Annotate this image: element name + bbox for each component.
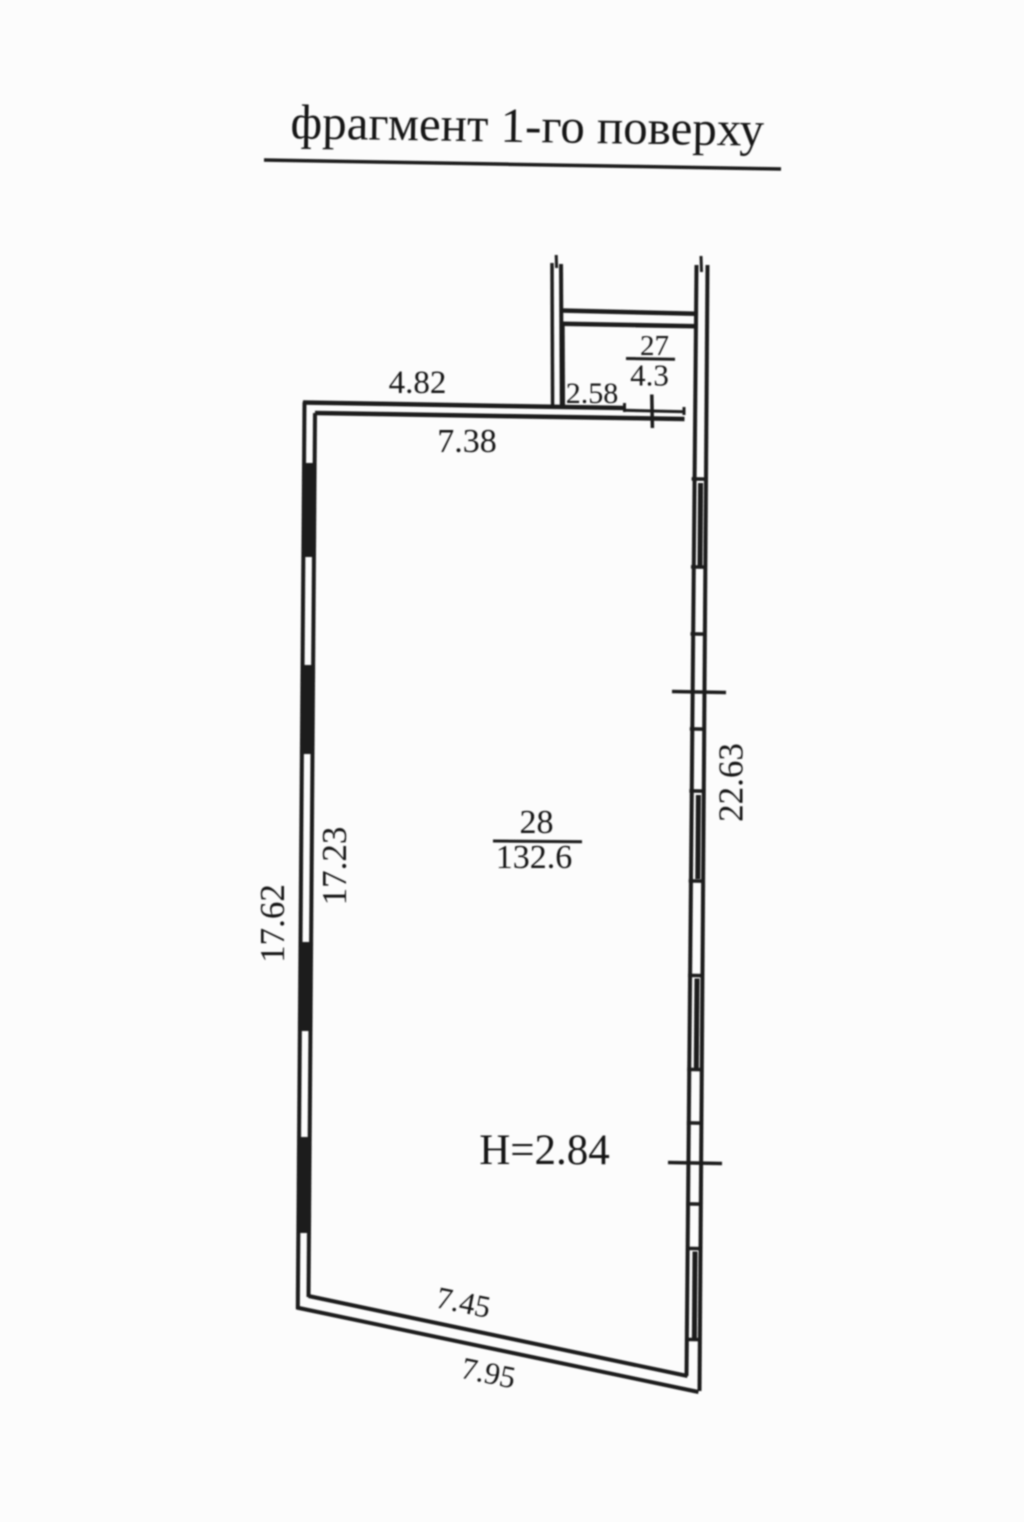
svg-text:H=2.84: H=2.84 bbox=[479, 1127, 610, 1174]
svg-text:28: 28 bbox=[520, 804, 554, 841]
svg-text:17.23: 17.23 bbox=[315, 827, 354, 906]
svg-text:4.82: 4.82 bbox=[389, 365, 447, 401]
svg-text:7.95: 7.95 bbox=[459, 1350, 519, 1395]
svg-text:22.63: 22.63 bbox=[712, 743, 751, 822]
svg-text:фрагмент 1-го поверху: фрагмент 1-го поверху bbox=[290, 94, 765, 156]
svg-text:132.6: 132.6 bbox=[496, 839, 573, 876]
svg-text:7.45: 7.45 bbox=[434, 1280, 494, 1325]
svg-text:2.58: 2.58 bbox=[566, 377, 619, 410]
svg-text:7.38: 7.38 bbox=[437, 423, 497, 460]
svg-text:4.3: 4.3 bbox=[630, 358, 669, 393]
svg-text:17.62: 17.62 bbox=[253, 884, 292, 963]
